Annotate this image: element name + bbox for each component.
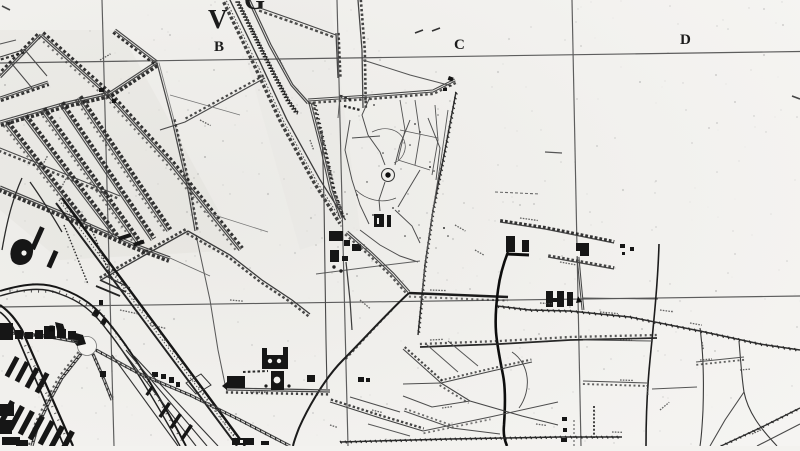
svg-text:G: G xyxy=(244,0,265,15)
svg-text:D: D xyxy=(680,32,691,48)
svg-text:B: B xyxy=(214,39,224,55)
svg-text:C: C xyxy=(454,37,465,53)
svg-text:V: V xyxy=(208,4,228,34)
